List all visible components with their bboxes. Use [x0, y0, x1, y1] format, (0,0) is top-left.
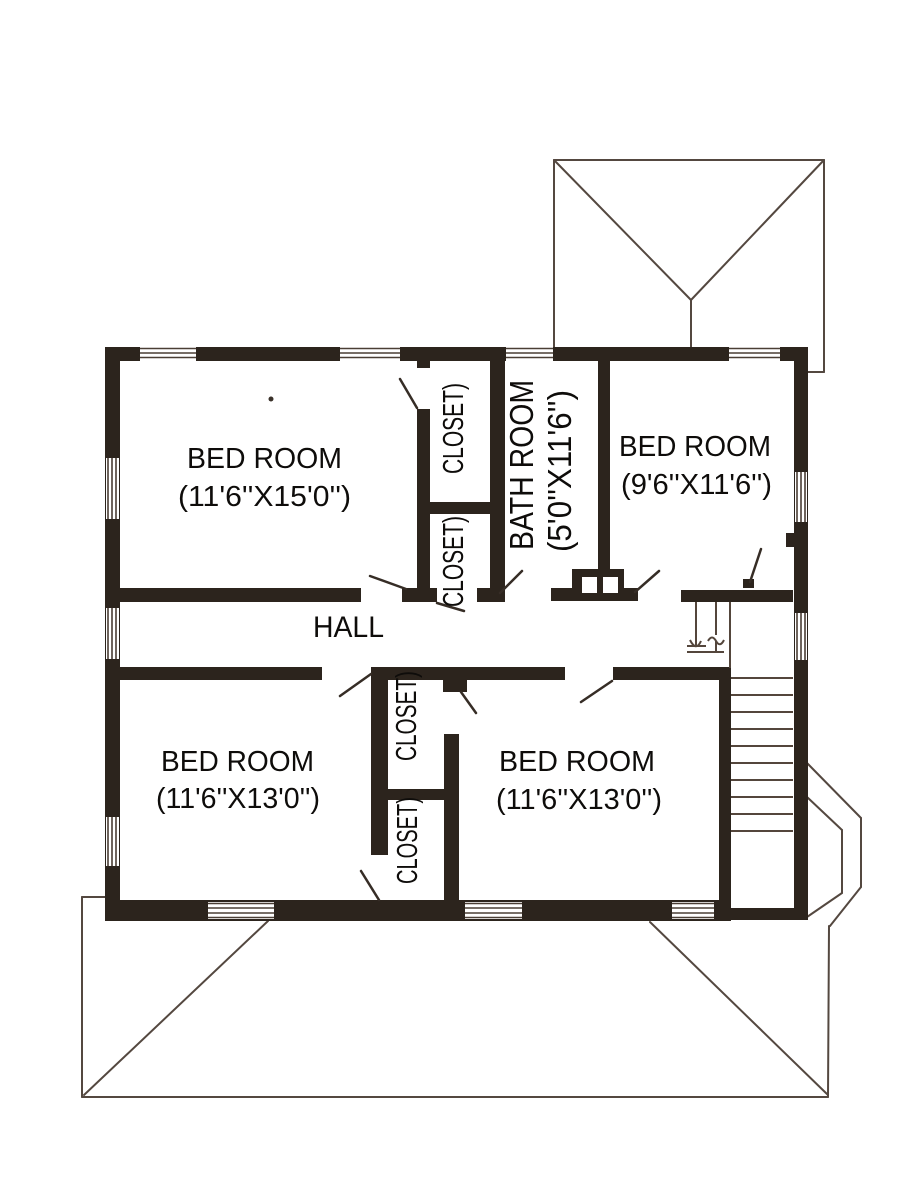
- svg-text:CLOSET): CLOSET): [391, 671, 423, 761]
- svg-text:(9'6''X11'6''): (9'6''X11'6''): [621, 469, 772, 501]
- svg-text:CLOSET): CLOSET): [392, 797, 424, 884]
- svg-text:(11'6''X13'0''): (11'6''X13'0''): [496, 784, 662, 816]
- svg-text:CLOSET): CLOSET): [438, 516, 470, 607]
- svg-text:BED ROOM: BED ROOM: [187, 443, 342, 475]
- svg-text:BED ROOM: BED ROOM: [499, 746, 655, 778]
- svg-text:CLOSET): CLOSET): [438, 383, 470, 474]
- svg-text:(11'6''X15'0''): (11'6''X15'0''): [178, 481, 351, 513]
- svg-text:BED ROOM: BED ROOM: [161, 746, 314, 778]
- svg-text:HALL: HALL: [313, 611, 384, 644]
- svg-text:BED ROOM: BED ROOM: [619, 431, 771, 463]
- svg-text:BATH ROOM: BATH ROOM: [503, 380, 540, 550]
- svg-text:(5'0''X11'6''): (5'0''X11'6''): [541, 390, 578, 552]
- svg-text:(11'6''X13'0''): (11'6''X13'0''): [156, 783, 320, 815]
